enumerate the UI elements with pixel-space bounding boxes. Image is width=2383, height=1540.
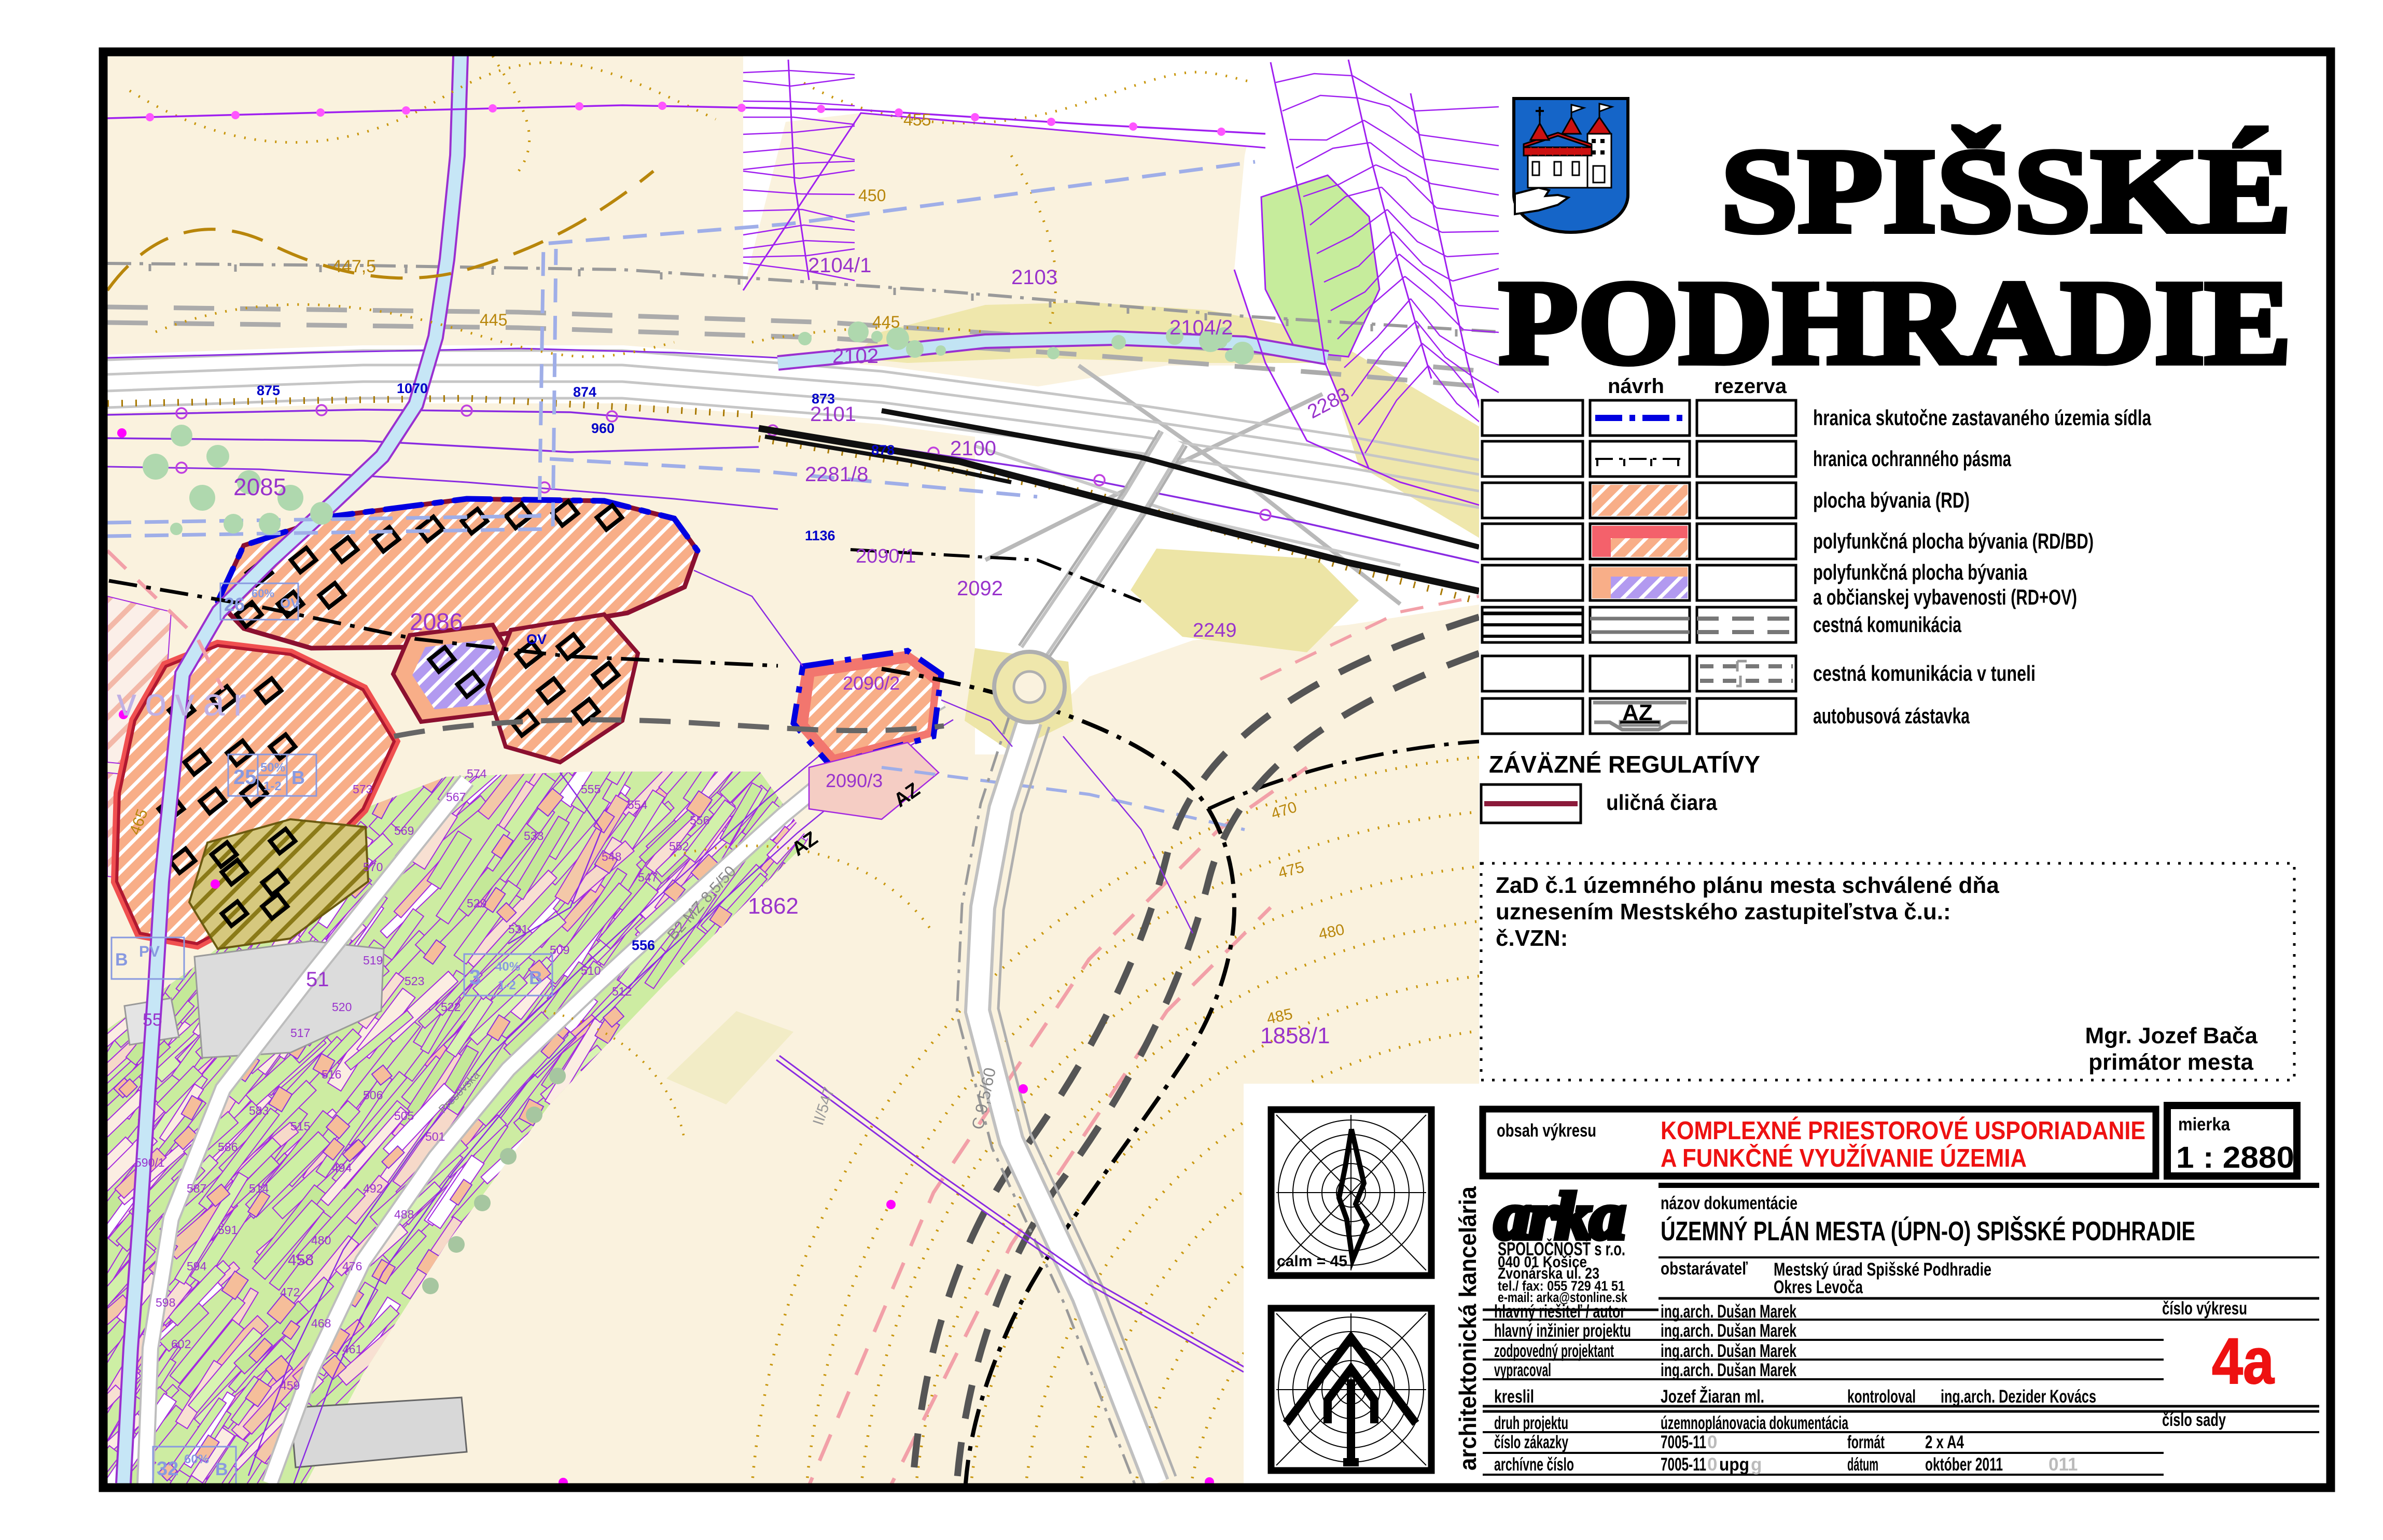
svg-text:1862: 1862 <box>748 893 799 919</box>
svg-text:522: 522 <box>441 1000 461 1014</box>
svg-text:459: 459 <box>280 1379 300 1392</box>
svg-text:1 : 2880: 1 : 2880 <box>2176 1141 2294 1174</box>
svg-text:PV: PV <box>139 943 160 960</box>
svg-text:0: 0 <box>1707 1432 1717 1452</box>
svg-text:7005-11: 7005-11 <box>1661 1432 1706 1452</box>
svg-text:519: 519 <box>363 954 383 967</box>
svg-text:1136: 1136 <box>805 528 835 543</box>
svg-text:510: 510 <box>581 964 601 977</box>
svg-text:1-2: 1-2 <box>263 779 282 793</box>
svg-text:OV: OV <box>526 632 547 647</box>
svg-text:OV: OV <box>280 595 300 611</box>
svg-text:architektonická kancelária: architektonická kancelária <box>1454 1186 1481 1471</box>
svg-text:516: 516 <box>322 1068 341 1081</box>
svg-text:476: 476 <box>342 1259 362 1273</box>
svg-text:ing.arch. Dušan Marek: ing.arch. Dušan Marek <box>1661 1321 1796 1341</box>
svg-text:458: 458 <box>288 1252 314 1269</box>
svg-text:468: 468 <box>311 1317 331 1330</box>
svg-text:569: 569 <box>394 824 414 837</box>
svg-text:územnoplánovacia dokumentácia: územnoplánovacia dokumentácia <box>1661 1413 1848 1433</box>
svg-text:ÚZEMNÝ PLÁN MESTA (ÚPN-O) SPIŠ: ÚZEMNÝ PLÁN MESTA (ÚPN-O) SPIŠSKÉ PODHRA… <box>1661 1216 2195 1247</box>
svg-text:960: 960 <box>591 421 615 436</box>
svg-text:2102: 2102 <box>832 345 879 368</box>
svg-text:570: 570 <box>363 860 383 874</box>
svg-text:554: 554 <box>628 798 648 811</box>
svg-text:2100: 2100 <box>950 437 996 460</box>
svg-text:590/1: 590/1 <box>135 1156 165 1169</box>
svg-text:7005-11: 7005-11 <box>1661 1454 1706 1475</box>
svg-text:kontroloval: kontroloval <box>1847 1387 1916 1407</box>
svg-text:2 x A4: 2 x A4 <box>1925 1432 1964 1452</box>
svg-text:472: 472 <box>280 1285 300 1299</box>
svg-text:polyfunkčná plocha bývania (RD: polyfunkčná plocha bývania (RD/BD) <box>1813 529 2094 553</box>
svg-text:upg: upg <box>1719 1454 1749 1475</box>
svg-text:číslo zákazky: číslo zákazky <box>1494 1432 1568 1452</box>
svg-text:ZaD č.1 územného plánu mesta s: ZaD č.1 územného plánu mesta schválené d… <box>1496 873 1999 898</box>
svg-text:011: 011 <box>2048 1454 2078 1475</box>
svg-text:2103: 2103 <box>1011 266 1057 289</box>
svg-text:512: 512 <box>612 985 632 998</box>
svg-text:450: 450 <box>858 186 886 205</box>
svg-text:51: 51 <box>306 968 329 991</box>
svg-text:531: 531 <box>508 922 528 936</box>
svg-text:2092: 2092 <box>957 577 1003 600</box>
svg-text:480: 480 <box>311 1234 331 1247</box>
svg-text:602: 602 <box>171 1337 191 1351</box>
svg-text:ing.arch. Dušan Marek: ing.arch. Dušan Marek <box>1661 1360 1796 1380</box>
svg-text:uličná čiara: uličná čiara <box>1606 790 1718 815</box>
svg-text:2085: 2085 <box>233 473 286 500</box>
svg-text:ZÁVÄZNÉ REGULATÍVY: ZÁVÄZNÉ REGULATÍVY <box>1489 751 1760 778</box>
svg-text:556: 556 <box>632 937 655 953</box>
svg-text:574: 574 <box>467 767 487 780</box>
svg-text:hranica skutočne zastavaného ú: hranica skutočne zastavaného územia sídl… <box>1813 405 2151 430</box>
svg-text:B: B <box>215 1460 228 1479</box>
svg-text:vovar: vovar <box>117 680 255 724</box>
svg-text:552: 552 <box>669 839 689 853</box>
svg-text:plocha bývania (RD): plocha bývania (RD) <box>1813 488 1970 512</box>
svg-text:Okres Levoča: Okres Levoča <box>1774 1277 1863 1297</box>
svg-text:874: 874 <box>573 384 596 400</box>
svg-text:555: 555 <box>581 782 601 796</box>
svg-text:32: 32 <box>157 1458 178 1480</box>
svg-text:hlavný inžinier projektu: hlavný inžinier projektu <box>1494 1321 1631 1341</box>
svg-text:445: 445 <box>872 313 900 331</box>
svg-text:533: 533 <box>524 829 544 843</box>
svg-text:514: 514 <box>249 1182 269 1195</box>
svg-text:rezerva: rezerva <box>1714 375 1787 398</box>
svg-text:B: B <box>115 950 128 970</box>
svg-text:formát: formát <box>1847 1432 1885 1452</box>
svg-text:obstarávateľ: obstarávateľ <box>1661 1259 1748 1279</box>
svg-text:455: 455 <box>903 110 931 129</box>
svg-text:548: 548 <box>602 850 621 863</box>
svg-text:505: 505 <box>394 1109 414 1123</box>
svg-text:mierka: mierka <box>2178 1114 2230 1135</box>
svg-text:873: 873 <box>812 391 835 407</box>
svg-text:číslo výkresu: číslo výkresu <box>2162 1298 2247 1319</box>
svg-text:cestná komunikácia v tuneli: cestná komunikácia v tuneli <box>1813 661 2036 685</box>
svg-text:návrh: návrh <box>1608 375 1664 398</box>
svg-text:598: 598 <box>156 1296 175 1309</box>
svg-text:25: 25 <box>233 766 257 789</box>
svg-text:KOMPLEXNÉ PRIESTOROVÉ USPORIAD: KOMPLEXNÉ PRIESTOROVÉ USPORIADANIE <box>1661 1117 2145 1145</box>
svg-text:B: B <box>529 967 542 988</box>
svg-text:g: g <box>1751 1454 1762 1475</box>
svg-text:vypracoval: vypracoval <box>1494 1360 1551 1380</box>
svg-text:číslo sady: číslo sady <box>2162 1410 2226 1430</box>
svg-text:Jozef Žiaran ml.: Jozef Žiaran ml. <box>1661 1386 1764 1407</box>
svg-text:55: 55 <box>143 1010 162 1030</box>
svg-text:567: 567 <box>446 790 466 804</box>
svg-text:SPIŠSKÉ: SPIŠSKÉ <box>1721 124 2291 258</box>
svg-text:2086: 2086 <box>410 608 463 635</box>
svg-text:autobusová zástavka: autobusová zástavka <box>1813 704 1970 728</box>
svg-text:50%: 50% <box>260 761 285 775</box>
svg-text:556: 556 <box>690 814 709 827</box>
svg-text:primátor mesta: primátor mesta <box>2088 1049 2253 1075</box>
svg-text:520: 520 <box>332 1000 352 1014</box>
svg-text:1070: 1070 <box>397 381 428 396</box>
svg-text:B: B <box>291 767 305 788</box>
svg-text:583: 583 <box>249 1104 269 1117</box>
svg-text:4a: 4a <box>2212 1325 2275 1397</box>
svg-text:október 2011: október 2011 <box>1925 1454 2003 1475</box>
svg-text:445: 445 <box>480 311 507 329</box>
svg-text:506: 506 <box>363 1088 383 1102</box>
svg-text:573: 573 <box>353 782 372 796</box>
svg-text:2249: 2249 <box>1193 620 1237 641</box>
svg-text:515: 515 <box>290 1119 310 1133</box>
svg-text:calm = 45: calm = 45 <box>1277 1253 1347 1270</box>
svg-text:2090/1: 2090/1 <box>856 545 916 567</box>
svg-text:hranica ochranného pásma: hranica ochranného pásma <box>1813 446 2011 471</box>
svg-text:a občianskej vybavenosti (RD+O: a občianskej vybavenosti (RD+OV) <box>1813 585 2077 609</box>
svg-text:2281/8: 2281/8 <box>805 463 868 486</box>
svg-text:druh projektu: druh projektu <box>1494 1413 1568 1433</box>
svg-text:polyfunkčná plocha bývania: polyfunkčná plocha bývania <box>1813 560 2027 584</box>
svg-text:2090/2: 2090/2 <box>843 673 900 694</box>
svg-text:3: 3 <box>469 966 481 989</box>
svg-text:2090/3: 2090/3 <box>826 770 883 791</box>
svg-text:A FUNKČNÉ VYUŽÍVANIE ÚZEMIA: A FUNKČNÉ VYUŽÍVANIE ÚZEMIA <box>1661 1144 2027 1172</box>
svg-text:517: 517 <box>290 1026 310 1040</box>
svg-text:60%: 60% <box>252 587 274 600</box>
svg-text:ing.arch. Dušan Marek: ing.arch. Dušan Marek <box>1661 1341 1796 1361</box>
svg-text:60%: 60% <box>184 1452 209 1466</box>
svg-text:kreslil: kreslil <box>1494 1387 1534 1407</box>
svg-text:archívne číslo: archívne číslo <box>1494 1454 1574 1475</box>
svg-text:cestná komunikácia: cestná komunikácia <box>1813 612 1961 637</box>
svg-text:Mgr. Jozef Bača: Mgr. Jozef Bača <box>2085 1023 2257 1048</box>
svg-text:523: 523 <box>405 974 424 988</box>
svg-text:uznesením Mestského zastupiteľ: uznesením Mestského zastupiteľstva č.u.: <box>1496 899 1951 925</box>
svg-text:26: 26 <box>224 594 245 615</box>
svg-text:ing.arch. Dezider Kovács: ing.arch. Dezider Kovács <box>1941 1387 2096 1407</box>
svg-text:586: 586 <box>218 1140 238 1154</box>
svg-text:447,5: 447,5 <box>332 257 376 276</box>
svg-text:878: 878 <box>871 442 895 458</box>
svg-text:875: 875 <box>257 383 280 398</box>
svg-text:1-2: 1-2 <box>498 978 516 992</box>
svg-text:492: 492 <box>363 1182 383 1195</box>
svg-text:488: 488 <box>394 1208 414 1221</box>
svg-text:594: 594 <box>187 1259 207 1273</box>
svg-text:č.VZN:: č.VZN: <box>1496 926 1568 951</box>
svg-text:zodpovedný projektant: zodpovedný projektant <box>1494 1341 1614 1361</box>
svg-text:PODHRADIE: PODHRADIE <box>1499 256 2291 389</box>
svg-text:0: 0 <box>1707 1454 1717 1475</box>
svg-text:494: 494 <box>332 1161 352 1174</box>
svg-text:547: 547 <box>638 871 658 884</box>
svg-text:591: 591 <box>218 1223 238 1237</box>
svg-text:501: 501 <box>425 1130 445 1143</box>
svg-text:2104/2: 2104/2 <box>1169 316 1233 339</box>
svg-text:529: 529 <box>467 897 486 910</box>
svg-text:obsah výkresu: obsah výkresu <box>1497 1121 1596 1141</box>
svg-text:587: 587 <box>187 1182 206 1195</box>
svg-text:dátum: dátum <box>1847 1454 1878 1475</box>
svg-text:názov dokumentácie: názov dokumentácie <box>1661 1193 1797 1213</box>
svg-text:2104/1: 2104/1 <box>808 254 871 277</box>
svg-text:40%: 40% <box>495 960 520 974</box>
svg-text:461: 461 <box>342 1342 362 1356</box>
